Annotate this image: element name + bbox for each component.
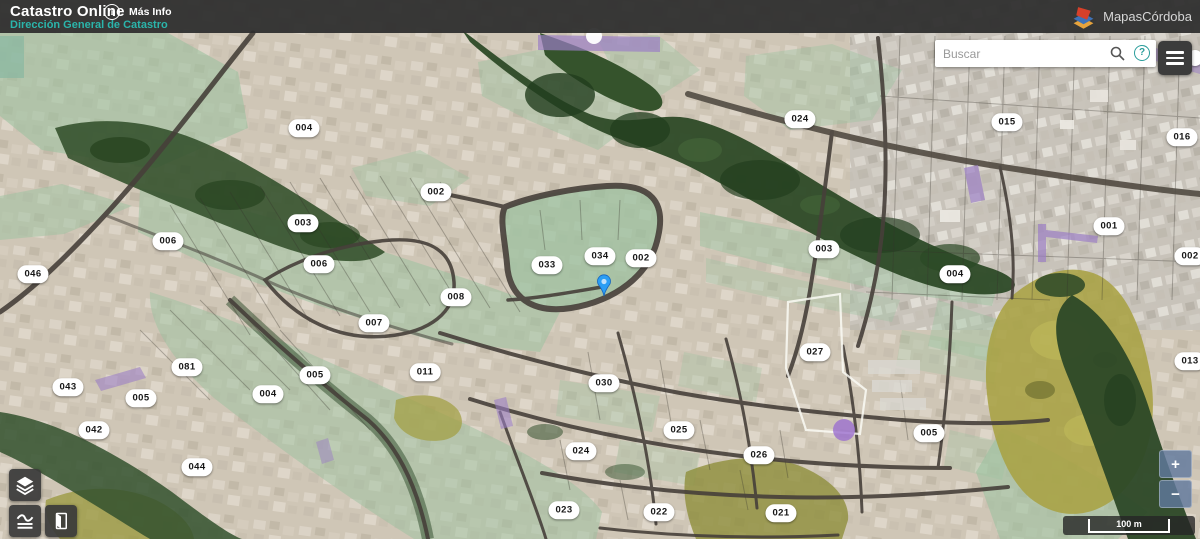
parcel-badge[interactable]: 003 bbox=[287, 214, 318, 232]
parcel-badge[interactable]: 005 bbox=[299, 366, 330, 384]
map-viewport[interactable]: 0040020030060060460330340020080240150160… bbox=[0, 0, 1200, 539]
parcel-badge[interactable]: 004 bbox=[288, 119, 319, 137]
hamburger-menu-icon bbox=[1166, 51, 1184, 54]
map-sheet-button[interactable] bbox=[45, 505, 77, 537]
scale-bar: 100 m bbox=[1063, 516, 1195, 535]
scale-label: 100 m bbox=[1090, 519, 1168, 529]
brand-logo[interactable]: MapasCórdoba bbox=[1070, 0, 1192, 33]
app-subtitle: Dirección General de Catastro bbox=[10, 19, 168, 31]
parcel-badge[interactable]: 006 bbox=[303, 255, 334, 273]
more-info-link[interactable]: Más Info bbox=[129, 6, 172, 18]
parcel-badge[interactable]: 044 bbox=[181, 458, 212, 476]
parcel-badge[interactable]: 081 bbox=[171, 358, 202, 376]
parcel-badge[interactable]: 026 bbox=[743, 446, 774, 464]
scale-bracket: 100 m bbox=[1088, 519, 1170, 533]
search-box: ? bbox=[935, 40, 1156, 67]
help-icon[interactable]: ? bbox=[1134, 45, 1150, 61]
parcel-badge[interactable]: 004 bbox=[252, 385, 283, 403]
menu-button[interactable] bbox=[1158, 41, 1192, 75]
parcel-badge[interactable]: 030 bbox=[588, 374, 619, 392]
parcel-badge[interactable]: 004 bbox=[939, 265, 970, 283]
zoom-out-button[interactable]: − bbox=[1159, 480, 1192, 508]
zoom-in-button[interactable]: + bbox=[1159, 450, 1192, 478]
parcel-badge[interactable]: 003 bbox=[808, 240, 839, 258]
parcel-badge[interactable]: 006 bbox=[152, 232, 183, 250]
brand-name: MapasCórdoba bbox=[1103, 9, 1192, 24]
parcel-badge[interactable]: 022 bbox=[643, 503, 674, 521]
layers-stack-logo-icon bbox=[1070, 4, 1097, 30]
header-bar: Catastro Online i Más Info Dirección Gen… bbox=[0, 0, 1200, 33]
info-icon[interactable]: i bbox=[104, 4, 120, 20]
parcel-badge[interactable]: 008 bbox=[440, 288, 471, 306]
parcel-badge[interactable]: 005 bbox=[125, 389, 156, 407]
map-sheet-icon bbox=[49, 509, 73, 533]
parcel-badge[interactable]: 001 bbox=[1093, 217, 1124, 235]
parcel-badge[interactable]: 002 bbox=[625, 249, 656, 267]
basemap-button[interactable] bbox=[9, 505, 41, 537]
parcel-badge[interactable]: 034 bbox=[584, 247, 615, 265]
parcel-badge[interactable]: 033 bbox=[531, 256, 562, 274]
parcel-badge[interactable]: 042 bbox=[78, 421, 109, 439]
parcel-badge[interactable]: 002 bbox=[1174, 247, 1200, 265]
parcel-badge[interactable]: 013 bbox=[1174, 352, 1200, 370]
parcel-badge[interactable]: 021 bbox=[765, 504, 796, 522]
parcel-badge[interactable]: 046 bbox=[17, 265, 48, 283]
layers-icon bbox=[13, 473, 37, 497]
search-icon[interactable] bbox=[1109, 45, 1126, 62]
parcel-badge[interactable]: 024 bbox=[565, 442, 596, 460]
parcel-badge[interactable]: 027 bbox=[799, 343, 830, 361]
parcel-badge[interactable]: 002 bbox=[420, 183, 451, 201]
parcel-badge[interactable]: 015 bbox=[991, 113, 1022, 131]
location-marker-icon[interactable] bbox=[595, 273, 613, 297]
zoom-controls: + − bbox=[1159, 450, 1192, 510]
basemap-swipe-icon bbox=[13, 509, 37, 533]
parcel-badge[interactable]: 025 bbox=[663, 421, 694, 439]
layers-button[interactable] bbox=[9, 469, 41, 501]
parcel-badge[interactable]: 016 bbox=[1166, 128, 1197, 146]
parcel-badge[interactable]: 024 bbox=[784, 110, 815, 128]
parcel-badge[interactable]: 023 bbox=[548, 501, 579, 519]
basemap-satellite bbox=[0, 0, 1200, 539]
parcel-badge[interactable]: 007 bbox=[358, 314, 389, 332]
catastro-online-app: 0040020030060060460330340020080240150160… bbox=[0, 0, 1200, 539]
parcel-badge[interactable]: 043 bbox=[52, 378, 83, 396]
parcel-badge[interactable]: 005 bbox=[913, 424, 944, 442]
parcel-badge[interactable]: 011 bbox=[410, 363, 441, 381]
